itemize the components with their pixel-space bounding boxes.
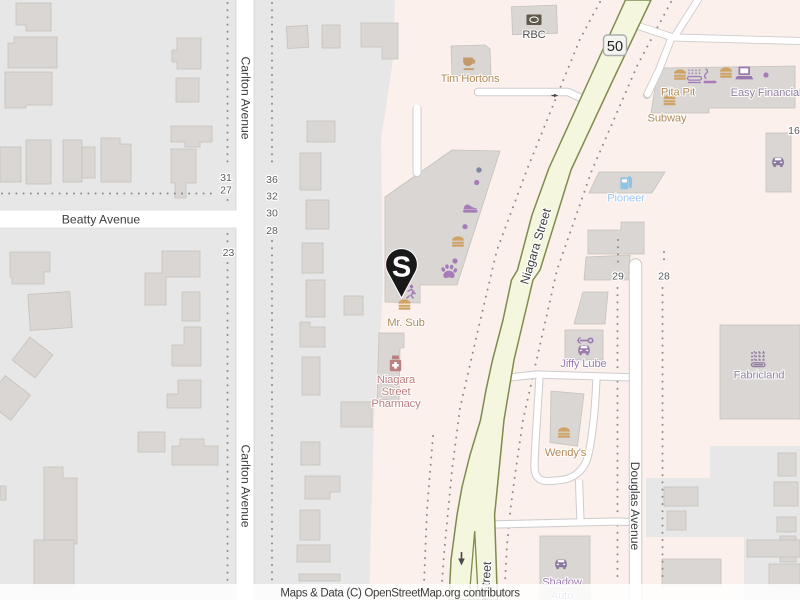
svg-text:31: 31 [220,172,232,184]
svg-text:Pita Pit: Pita Pit [661,87,696,99]
svg-text:Street: Street [382,386,412,398]
svg-text:29: 29 [612,271,624,283]
svg-text:32: 32 [266,191,278,203]
svg-text:Mr. Sub: Mr. Sub [387,317,425,329]
svg-text:RBC: RBC [522,29,545,41]
svg-text:23: 23 [223,247,235,259]
svg-text:Maps & Data (C) OpenStreetMap.: Maps & Data (C) OpenStreetMap.org contri… [280,588,520,600]
svg-text:Subway: Subway [648,113,687,125]
svg-text:Easy Financial: Easy Financial [731,87,800,99]
svg-text:Niagara: Niagara [377,374,416,386]
svg-text:27: 27 [220,185,232,197]
svg-text:Pharmacy: Pharmacy [371,398,421,410]
svg-text:S: S [392,252,411,284]
svg-text:Carlton Avenue: Carlton Avenue [239,56,253,139]
svg-text:28: 28 [266,225,278,237]
svg-text:Wendy's: Wendy's [545,447,587,459]
svg-text:36: 36 [266,174,278,186]
svg-text:Carlton Avenue: Carlton Avenue [239,444,253,527]
svg-text:Pioneer: Pioneer [607,193,645,205]
svg-text:50: 50 [607,39,623,55]
svg-text:Fabricland: Fabricland [734,370,785,382]
svg-text:30: 30 [266,208,278,220]
svg-text:Tim Hortons: Tim Hortons [441,73,500,85]
svg-text:Jiffy Lube: Jiffy Lube [560,358,606,370]
svg-text:28: 28 [658,271,670,283]
svg-text:16: 16 [788,125,800,137]
svg-text:Beatty Avenue: Beatty Avenue [62,213,141,227]
svg-text:Douglas Avenue: Douglas Avenue [628,462,642,551]
